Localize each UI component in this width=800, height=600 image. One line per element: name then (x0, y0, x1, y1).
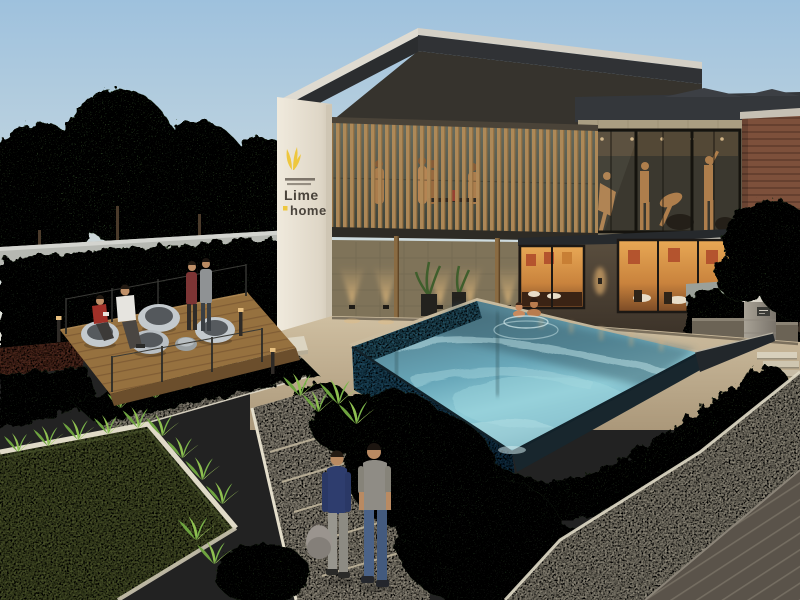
sign-yellow-mark (283, 206, 288, 211)
signage-column: Lime home (277, 97, 332, 338)
sign-line1: Lime (284, 187, 319, 203)
lit-room-a (520, 246, 584, 308)
signage-column-shade (326, 105, 332, 331)
scene-canvas: Lime home (0, 0, 800, 600)
overflow-foam (498, 446, 526, 454)
sign-tagline-row1 (285, 178, 315, 181)
gym-windows (586, 130, 740, 232)
sign-tagline-row2 (287, 183, 311, 185)
slat-facade (332, 117, 598, 241)
sign-line2: home (290, 203, 327, 218)
slat-screen (332, 121, 598, 235)
rendered-scene: Lime home (0, 0, 800, 600)
